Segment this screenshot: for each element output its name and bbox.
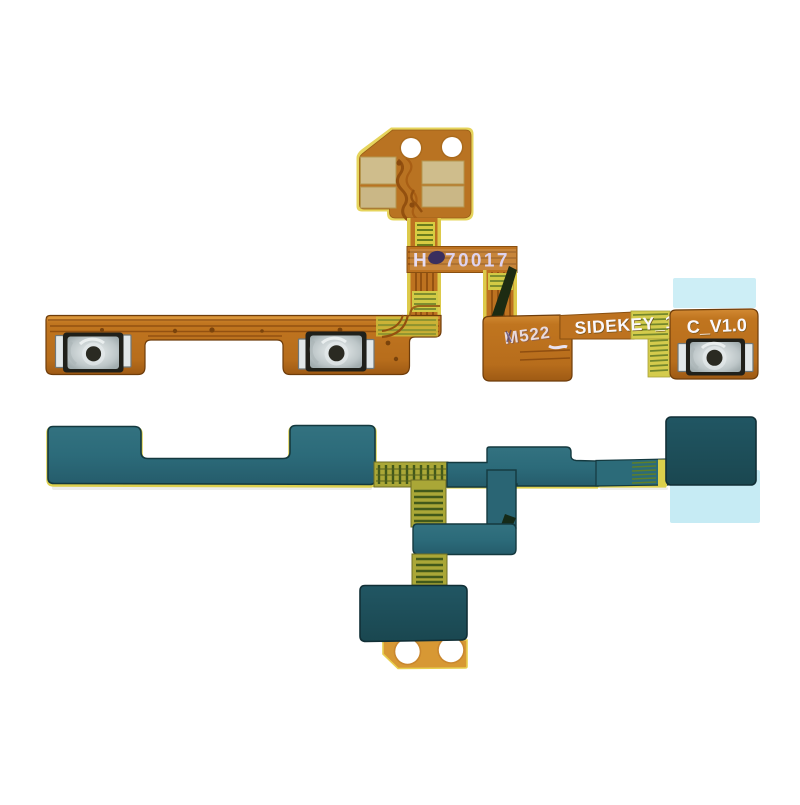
svg-text:H: H [413, 251, 428, 272]
svg-text:C_V1.0: C_V1.0 [686, 315, 747, 337]
svg-text:70017: 70017 [445, 251, 510, 272]
